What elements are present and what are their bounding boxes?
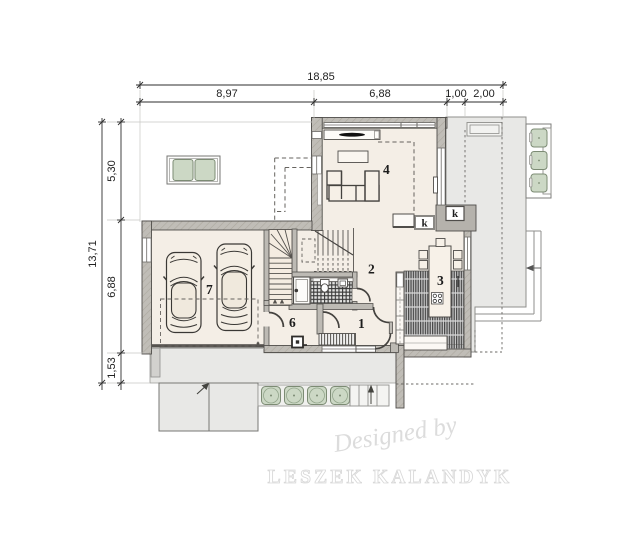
- svg-text:6,88: 6,88: [369, 88, 390, 100]
- svg-text:2: 2: [368, 262, 375, 277]
- svg-text:k: k: [421, 218, 428, 230]
- svg-text:4: 4: [383, 162, 390, 177]
- svg-text:1,00: 1,00: [445, 88, 466, 100]
- svg-text:6: 6: [289, 315, 296, 330]
- svg-text:5,30: 5,30: [106, 160, 118, 181]
- svg-text:2,00: 2,00: [473, 88, 494, 100]
- svg-text:1: 1: [358, 316, 365, 331]
- svg-text:3: 3: [437, 273, 444, 288]
- svg-text:13,71: 13,71: [87, 240, 99, 268]
- svg-text:k: k: [452, 208, 459, 220]
- svg-text:6,88: 6,88: [106, 276, 118, 297]
- svg-text:8,97: 8,97: [216, 88, 237, 100]
- svg-text:1,53: 1,53: [106, 357, 118, 378]
- svg-text:7: 7: [206, 282, 213, 297]
- svg-text:18,85: 18,85: [307, 71, 335, 83]
- svg-text:LESZEK KALANDYK: LESZEK KALANDYK: [268, 467, 513, 488]
